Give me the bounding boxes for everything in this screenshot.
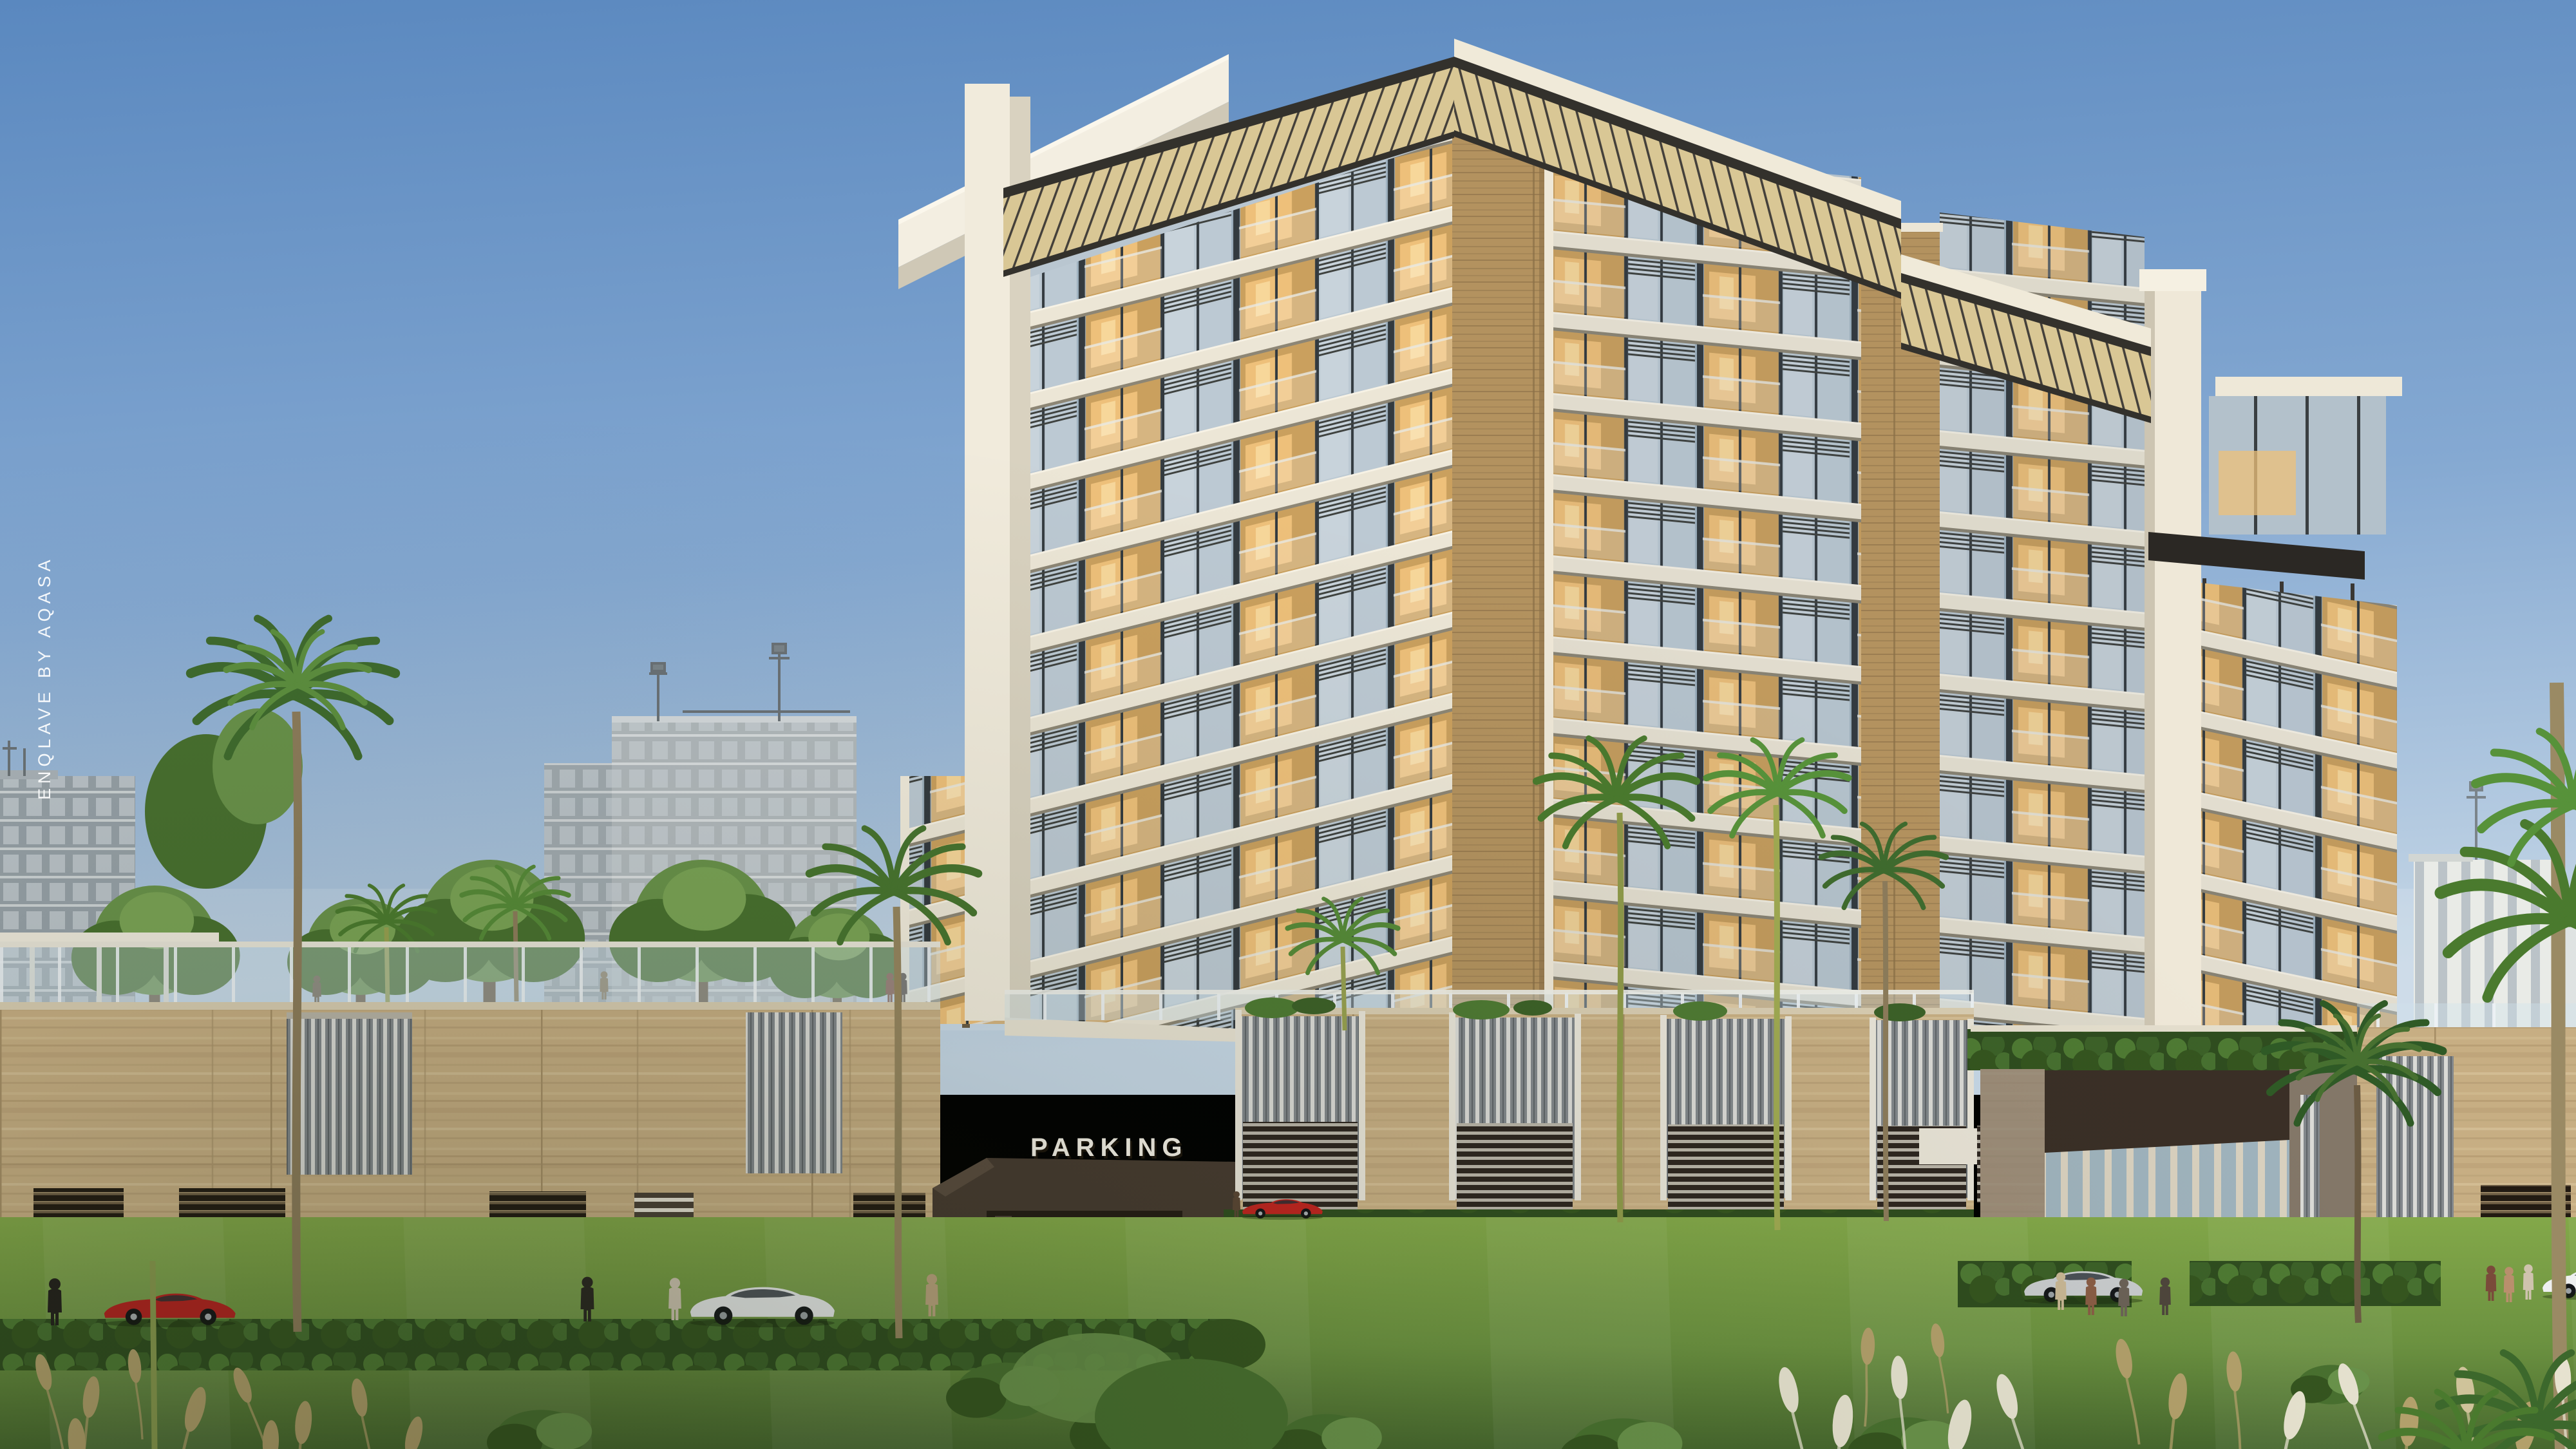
watermark: ENQLAVE BY AQASA bbox=[35, 555, 54, 800]
architectural-render: PARKING PARKING bbox=[0, 0, 2576, 1449]
vignette bbox=[0, 0, 2576, 1449]
